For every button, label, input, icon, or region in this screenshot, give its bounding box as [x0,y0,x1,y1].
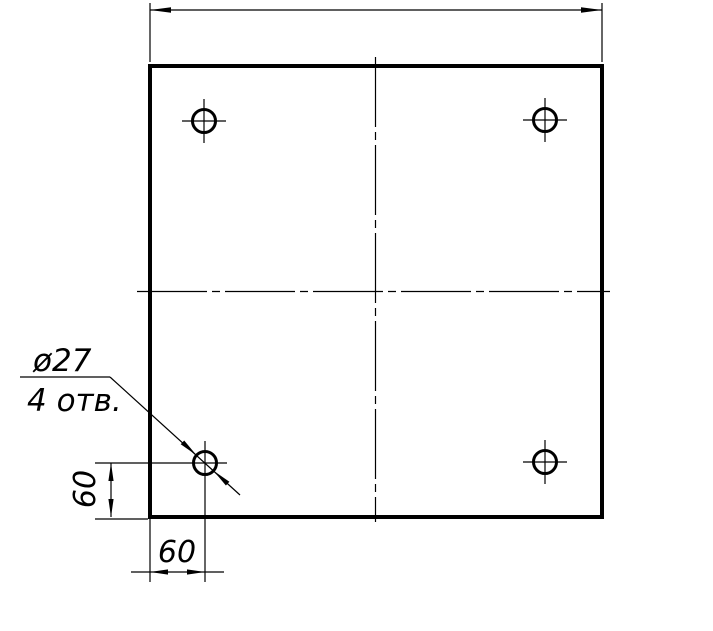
dimension-arrow-bottom-left [150,569,168,574]
dimension-arrow-top-left [150,7,171,12]
leader-arrow-upper [181,441,197,456]
callout-count-label: 4 отв. [27,383,122,419]
dimension-arrow-left-top [108,463,113,481]
dimension-top-width [150,3,602,62]
leader-arrow-lower [214,471,230,486]
hole-callout: ø27 4 отв. [20,343,240,495]
dimension-left-offset: 60 [68,463,148,519]
dim-label-bottom: 60 [158,535,196,570]
drawing-sheet: 60 60 ø27 4 отв. [0,0,713,631]
dim-label-left: 60 [68,470,103,508]
dimension-arrow-bottom-right [187,569,205,574]
hole-center-marks [95,98,567,582]
callout-diameter-label: ø27 [32,343,92,379]
technical-drawing-canvas: 60 60 ø27 4 отв. [0,0,713,631]
dimension-arrow-left-bottom [108,499,113,517]
dimension-bottom-offset: 60 [131,519,224,582]
dimension-arrow-top-right [581,7,602,12]
